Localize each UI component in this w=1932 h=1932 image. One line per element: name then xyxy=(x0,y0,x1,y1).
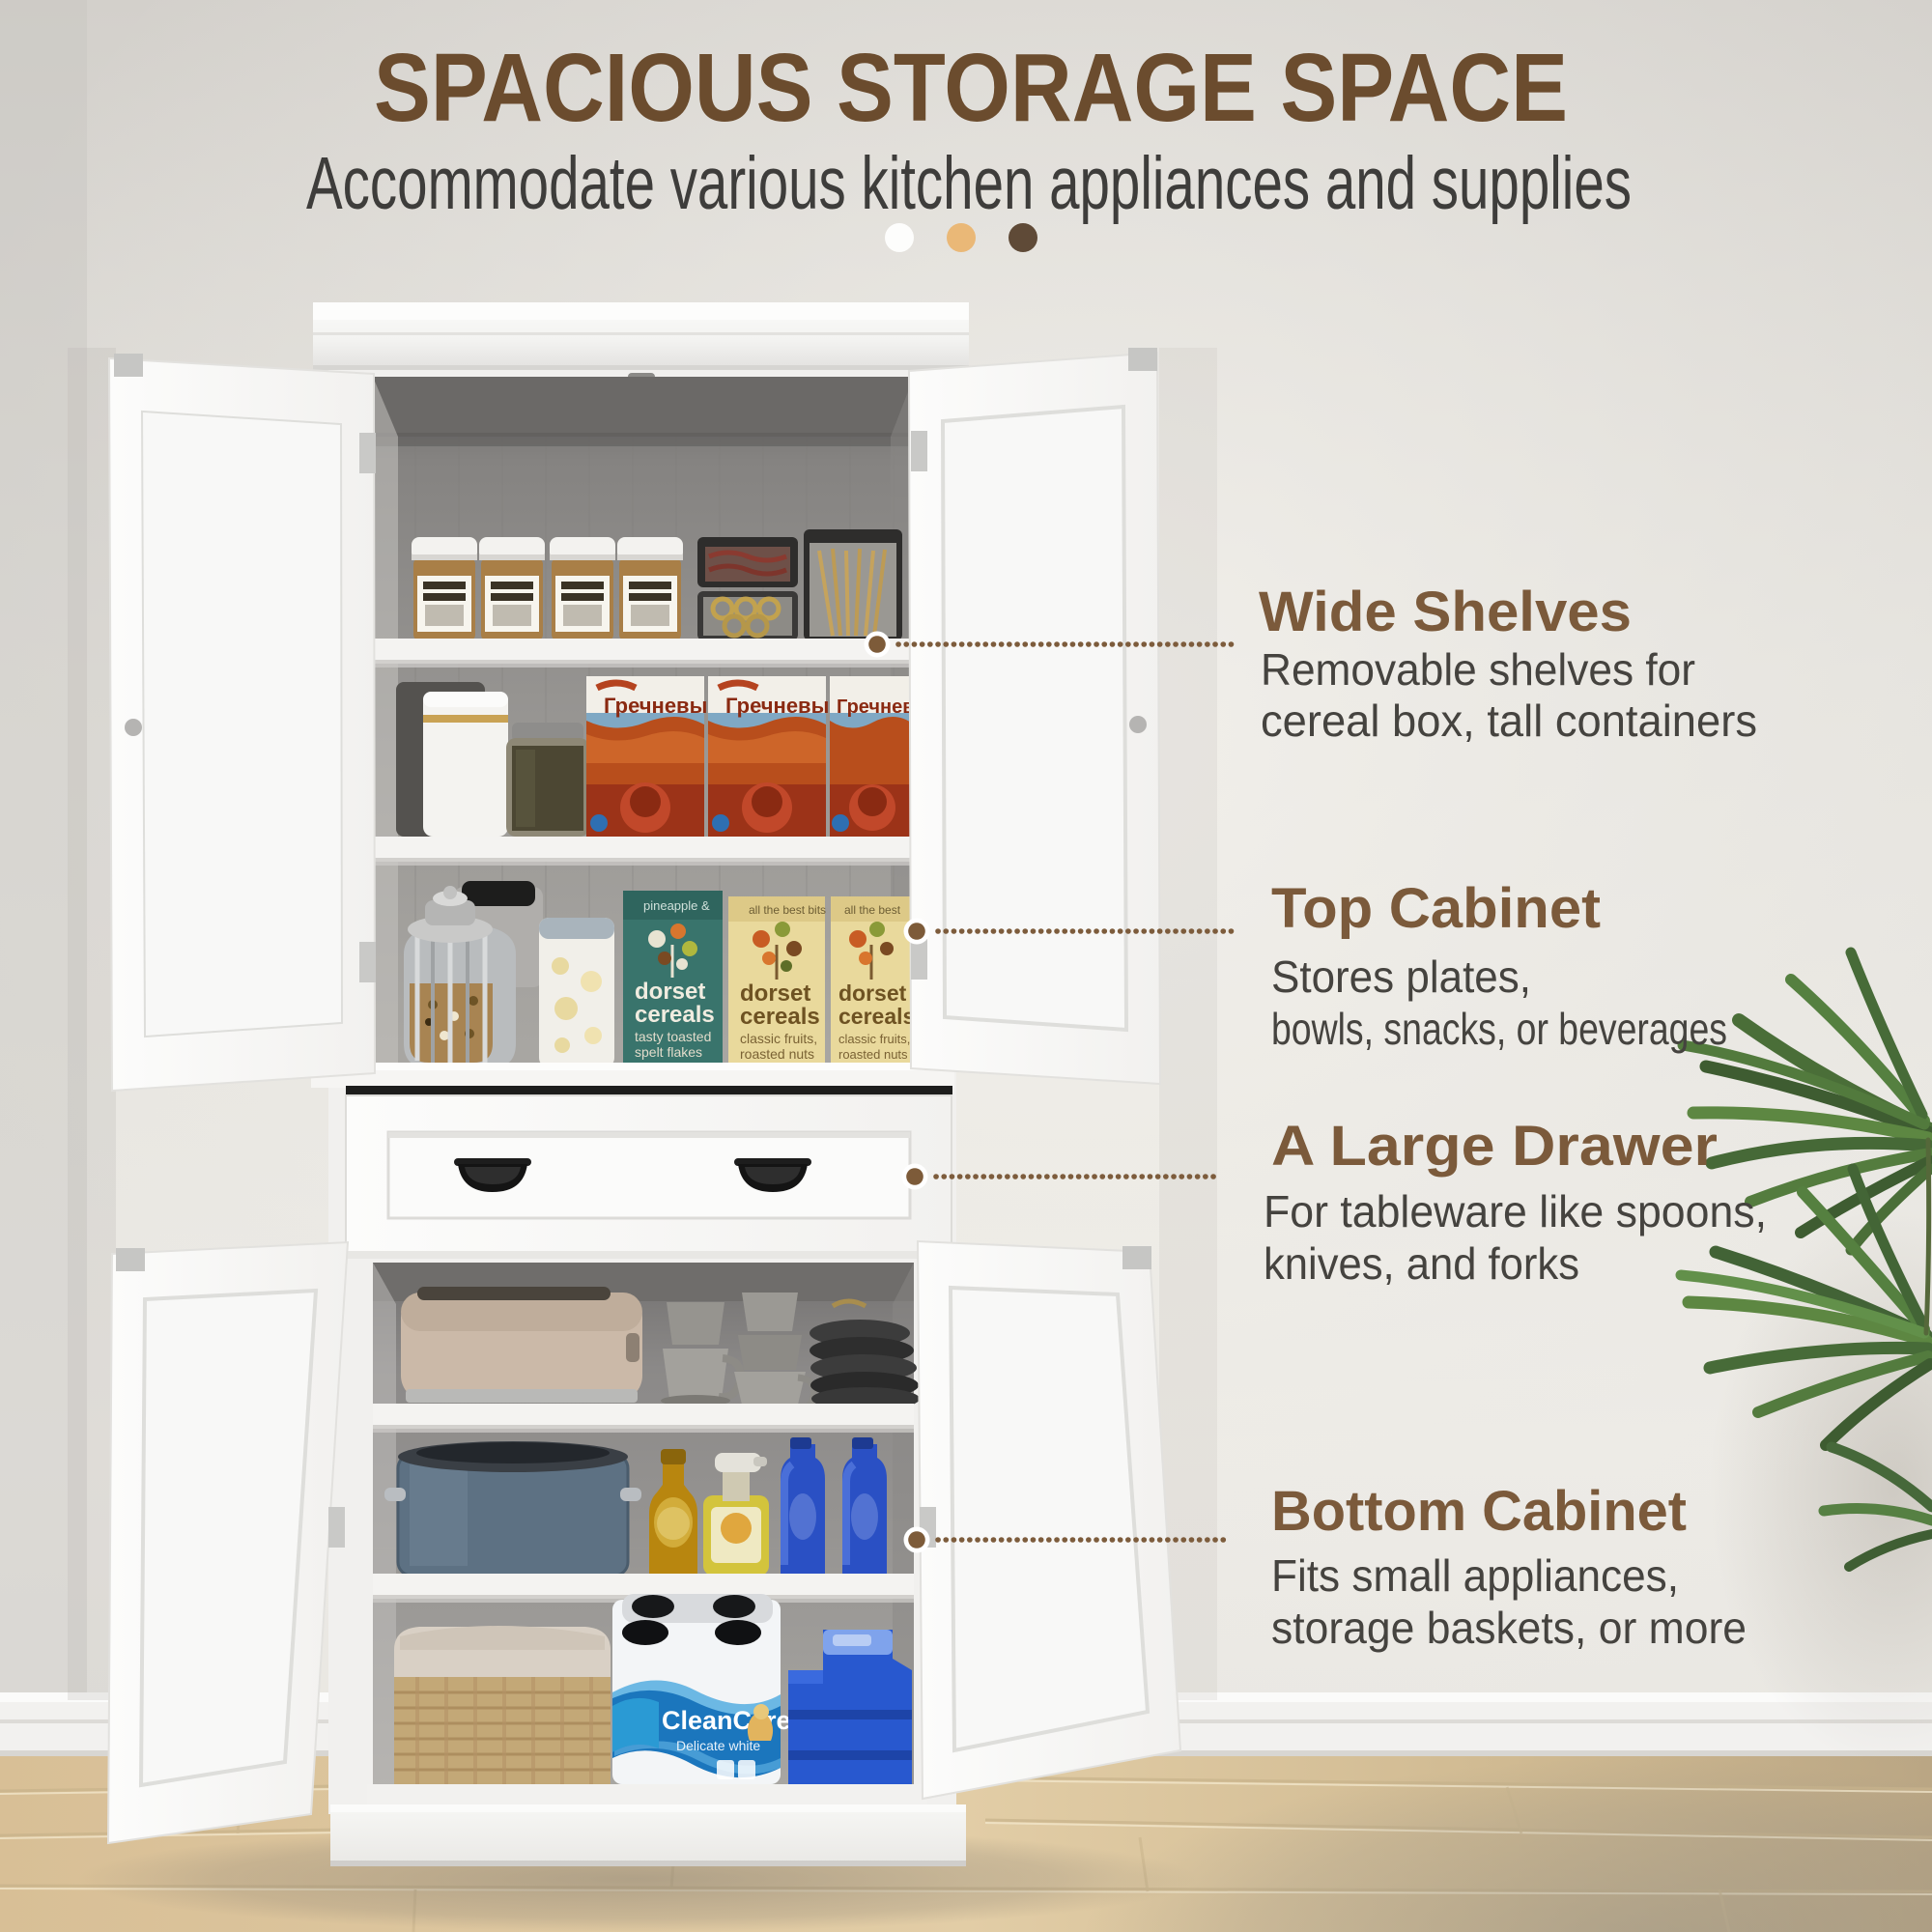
svg-text:Bottom Cabinet: Bottom Cabinet xyxy=(1271,1480,1687,1543)
svg-text:cereals: cereals xyxy=(635,1002,715,1028)
svg-text:cereals: cereals xyxy=(838,1004,915,1029)
svg-text:pineapple &: pineapple & xyxy=(643,898,710,913)
svg-text:classic fruits,: classic fruits, xyxy=(838,1032,910,1046)
svg-text:For tableware like spoons,: For tableware like spoons, xyxy=(1264,1186,1767,1236)
svg-text:SPACIOUS STORAGE SPACE: SPACIOUS STORAGE SPACE xyxy=(374,34,1568,142)
svg-text:dorset: dorset xyxy=(740,980,810,1007)
svg-text:storage baskets, or more: storage baskets, or more xyxy=(1271,1603,1747,1653)
svg-text:A Large Drawer: A Large Drawer xyxy=(1271,1115,1718,1178)
svg-text:Top Cabinet: Top Cabinet xyxy=(1271,877,1601,940)
svg-text:Delicate white: Delicate white xyxy=(676,1738,760,1753)
svg-text:Гречнев: Гречнев xyxy=(837,696,915,718)
svg-text:roasted nuts: roasted nuts xyxy=(740,1046,814,1062)
svg-text:dorset: dorset xyxy=(838,980,907,1006)
svg-text:Гречневые: Гречневые xyxy=(604,694,720,718)
svg-text:Stores plates,: Stores plates, xyxy=(1271,952,1531,1002)
svg-text:cereal box, tall containers: cereal box, tall containers xyxy=(1261,696,1757,746)
svg-text:cereals: cereals xyxy=(740,1004,820,1030)
svg-text:Removable shelves for: Removable shelves for xyxy=(1261,644,1695,695)
svg-text:Accommodate various kitchen ap: Accommodate various kitchen appliances a… xyxy=(306,142,1632,225)
svg-text:bowls, snacks, or beverages: bowls, snacks, or beverages xyxy=(1271,1004,1727,1054)
svg-text:dorset: dorset xyxy=(635,979,705,1005)
svg-text:all the best: all the best xyxy=(844,903,901,917)
svg-text:tasty toasted: tasty toasted xyxy=(635,1029,711,1044)
svg-text:Fits small appliances,: Fits small appliances, xyxy=(1271,1550,1679,1601)
svg-text:Гречневые: Гречневые xyxy=(725,694,841,718)
svg-text:classic fruits,: classic fruits, xyxy=(740,1031,817,1046)
svg-text:all the best bits: all the best bits xyxy=(749,903,826,917)
svg-text:spelt flakes: spelt flakes xyxy=(635,1044,702,1060)
svg-text:knives, and forks: knives, and forks xyxy=(1264,1238,1579,1289)
svg-text:Wide Shelves: Wide Shelves xyxy=(1259,581,1632,643)
svg-text:roasted nuts: roasted nuts xyxy=(838,1047,908,1062)
